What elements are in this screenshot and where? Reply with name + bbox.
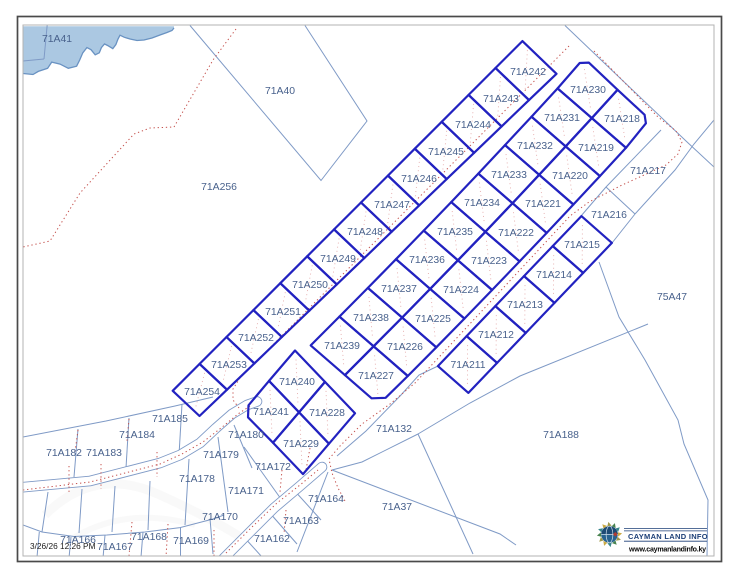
svg-text:71A247: 71A247 (374, 200, 410, 211)
svg-text:71A245: 71A245 (428, 147, 464, 158)
svg-text:71A214: 71A214 (536, 270, 572, 281)
svg-text:71A252: 71A252 (238, 333, 274, 344)
svg-text:71A163: 71A163 (283, 516, 319, 527)
svg-text:71A162: 71A162 (254, 534, 290, 545)
svg-text:71A188: 71A188 (543, 430, 579, 441)
svg-text:71A237: 71A237 (381, 284, 417, 295)
svg-text:71A251: 71A251 (265, 307, 301, 318)
svg-text:71A171: 71A171 (228, 486, 264, 497)
svg-text:71A216: 71A216 (591, 210, 627, 221)
svg-text:71A236: 71A236 (409, 255, 445, 266)
svg-text:71A227: 71A227 (358, 371, 394, 382)
svg-text:71A185: 71A185 (152, 414, 188, 425)
svg-text:71A215: 71A215 (564, 240, 600, 251)
svg-text:71A220: 71A220 (552, 171, 588, 182)
svg-text:71A254: 71A254 (184, 387, 220, 398)
svg-text:71A180: 71A180 (228, 430, 264, 441)
svg-text:71A243: 71A243 (483, 94, 519, 105)
svg-text:71A164: 71A164 (308, 494, 344, 505)
svg-text:71A37: 71A37 (382, 502, 412, 513)
svg-text:71A253: 71A253 (211, 360, 247, 371)
svg-text:71A231: 71A231 (544, 113, 580, 124)
svg-text:71A221: 71A221 (525, 199, 561, 210)
svg-text:71A222: 71A222 (498, 228, 534, 239)
svg-text:71A232: 71A232 (517, 141, 553, 152)
svg-text:71A235: 71A235 (437, 227, 473, 238)
svg-text:71A217: 71A217 (630, 166, 666, 177)
svg-text:71A229: 71A229 (283, 439, 319, 450)
svg-text:71A256: 71A256 (201, 182, 237, 193)
svg-text:CAYMAN LAND INFO: CAYMAN LAND INFO (628, 532, 708, 541)
svg-text:www.caymanlandinfo.ky: www.caymanlandinfo.ky (628, 546, 706, 554)
svg-text:71A248: 71A248 (347, 227, 383, 238)
svg-text:71A226: 71A226 (387, 342, 423, 353)
svg-text:71A250: 71A250 (292, 280, 328, 291)
svg-text:71A249: 71A249 (320, 254, 356, 265)
svg-text:71A172: 71A172 (255, 462, 291, 473)
svg-text:71A240: 71A240 (279, 377, 315, 388)
svg-text:71A168: 71A168 (131, 532, 167, 543)
svg-text:71A225: 71A225 (415, 314, 451, 325)
svg-text:71A182: 71A182 (46, 448, 82, 459)
svg-text:71A223: 71A223 (471, 256, 507, 267)
svg-text:71A167: 71A167 (97, 542, 133, 553)
svg-text:71A183: 71A183 (86, 448, 122, 459)
svg-text:71A132: 71A132 (376, 424, 412, 435)
svg-text:71A184: 71A184 (119, 430, 155, 441)
svg-text:71A234: 71A234 (464, 198, 500, 209)
svg-text:71A218: 71A218 (604, 114, 640, 125)
svg-text:71A211: 71A211 (450, 360, 485, 371)
svg-text:71A241: 71A241 (253, 407, 289, 418)
svg-text:71A242: 71A242 (510, 67, 546, 78)
svg-text:71A246: 71A246 (401, 174, 437, 185)
svg-text:71A230: 71A230 (570, 85, 606, 96)
svg-text:71A224: 71A224 (443, 285, 479, 296)
svg-text:71A169: 71A169 (173, 536, 209, 547)
svg-text:71A170: 71A170 (202, 512, 238, 523)
svg-text:71A219: 71A219 (578, 143, 614, 154)
svg-text:71A178: 71A178 (179, 474, 215, 485)
svg-text:3/26/26 12:26 PM: 3/26/26 12:26 PM (30, 541, 96, 551)
svg-text:71A40: 71A40 (265, 86, 295, 97)
svg-text:71A228: 71A228 (309, 408, 345, 419)
svg-text:71A41: 71A41 (42, 34, 72, 45)
svg-text:71A213: 71A213 (507, 300, 543, 311)
svg-text:71A238: 71A238 (353, 313, 389, 324)
svg-text:71A239: 71A239 (324, 341, 360, 352)
svg-text:71A244: 71A244 (455, 120, 491, 131)
svg-text:71A233: 71A233 (491, 170, 527, 181)
svg-text:71A179: 71A179 (203, 450, 239, 461)
svg-text:75A47: 75A47 (657, 292, 687, 303)
svg-text:71A212: 71A212 (478, 330, 514, 341)
